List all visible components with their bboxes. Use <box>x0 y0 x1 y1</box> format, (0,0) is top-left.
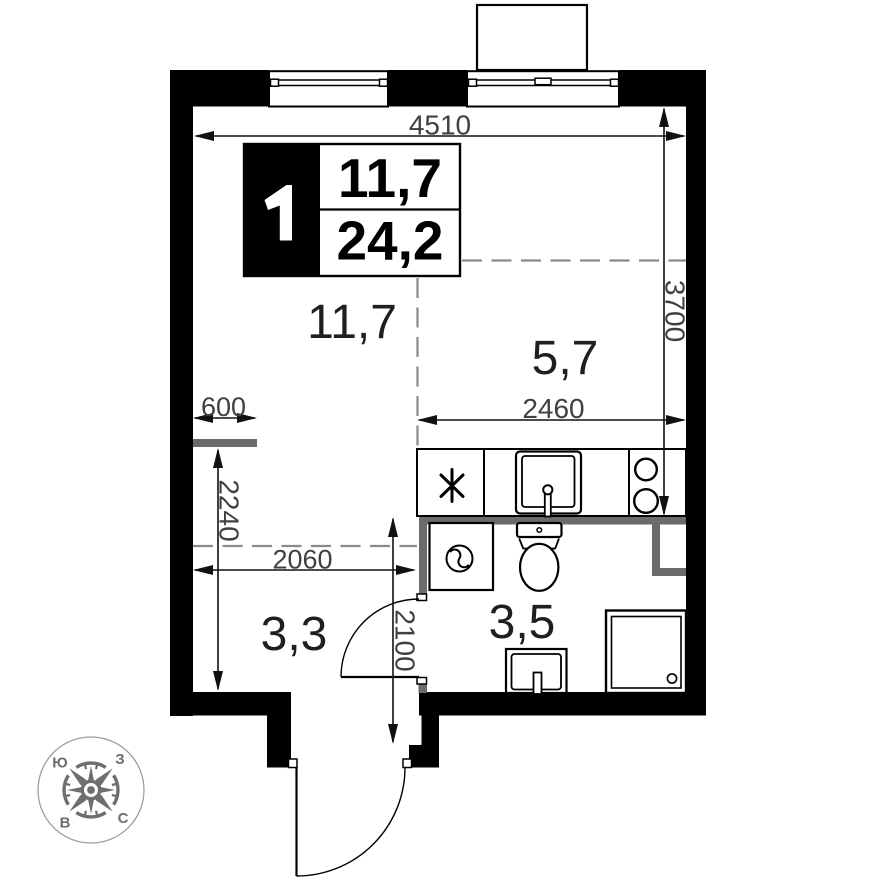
svg-text:С: С <box>118 810 129 827</box>
svg-text:3700: 3700 <box>660 280 691 342</box>
svg-text:В: В <box>60 815 71 832</box>
svg-text:11,7: 11,7 <box>307 296 397 349</box>
svg-text:Ю: Ю <box>52 755 67 772</box>
svg-text:3,5: 3,5 <box>489 596 556 649</box>
svg-text:11,7: 11,7 <box>338 147 442 209</box>
svg-text:3,3: 3,3 <box>261 608 328 661</box>
svg-text:600: 600 <box>201 392 246 422</box>
svg-text:2240: 2240 <box>214 479 245 541</box>
svg-text:2100: 2100 <box>390 609 421 671</box>
svg-text:2060: 2060 <box>272 545 332 575</box>
svg-text:4510: 4510 <box>409 110 471 141</box>
svg-text:24,2: 24,2 <box>336 210 443 272</box>
svg-text:5,7: 5,7 <box>532 332 599 385</box>
svg-text:З: З <box>115 751 124 768</box>
svg-text:2460: 2460 <box>522 393 584 424</box>
